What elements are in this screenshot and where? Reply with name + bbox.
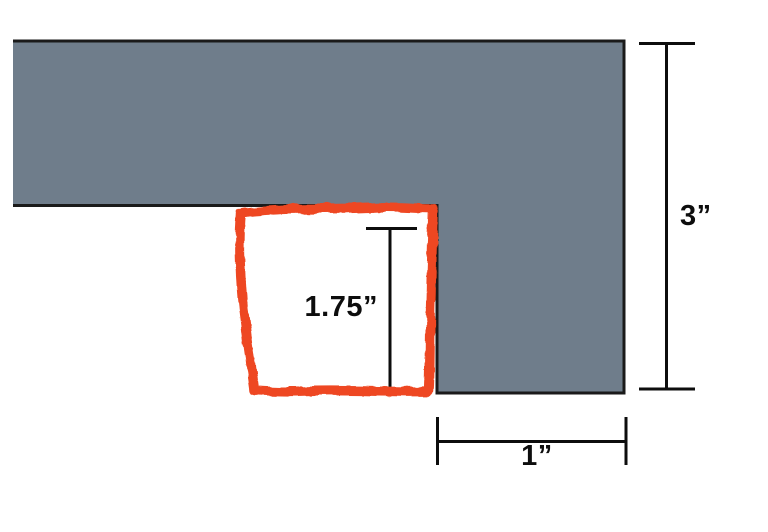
dimension-height-label: 3” <box>680 202 712 231</box>
dimension-notch-label: 1.75” <box>298 293 378 322</box>
part-drawing <box>0 0 768 532</box>
diagram-canvas: 3” 1.75” 1” <box>0 0 768 532</box>
dimension-width-label: 1” <box>497 442 577 471</box>
part-shape <box>13 41 624 393</box>
